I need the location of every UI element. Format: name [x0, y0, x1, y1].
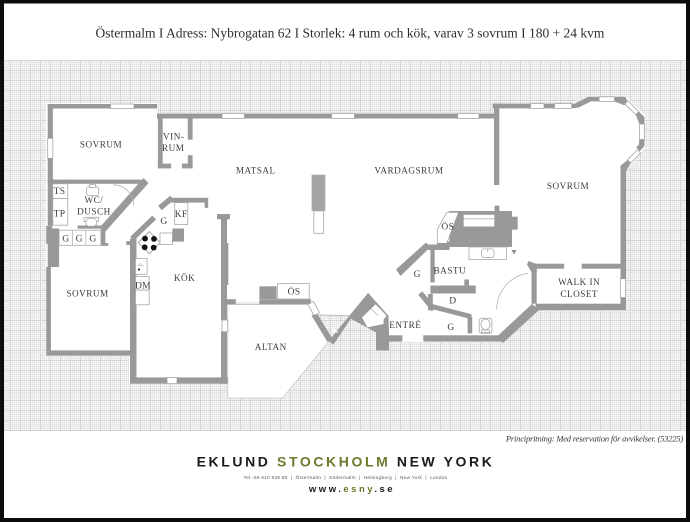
svg-text:EKLUND STOCKHOLM NEW YORK: EKLUND STOCKHOLM NEW YORK	[197, 454, 495, 470]
svg-text:ENTRÉ: ENTRÉ	[389, 320, 421, 330]
svg-text:SOVRUM: SOVRUM	[80, 140, 122, 150]
svg-text:RUM: RUM	[162, 143, 184, 153]
svg-text:Principritning: Med reservatio: Principritning: Med reservation för avvi…	[505, 434, 683, 444]
svg-text:CLOSET: CLOSET	[560, 289, 598, 299]
svg-text:TS: TS	[54, 187, 66, 197]
svg-text:TP: TP	[54, 210, 66, 220]
svg-text:DM: DM	[135, 282, 151, 292]
svg-text:G: G	[89, 234, 96, 244]
svg-text:ALTAN: ALTAN	[255, 342, 287, 352]
svg-text:G: G	[447, 323, 454, 333]
svg-text:WC/: WC/	[84, 195, 103, 205]
svg-text:www.esny.se: www.esny.se	[308, 484, 395, 495]
svg-text:DUSCH: DUSCH	[77, 206, 111, 216]
svg-text:SOVRUM: SOVRUM	[66, 289, 108, 299]
svg-text:ÖS: ÖS	[288, 286, 301, 298]
svg-text:G: G	[62, 234, 69, 244]
svg-text:Östermalm I Adress: Nybrogatan: Östermalm I Adress: Nybrogatan 62 I Stor…	[96, 26, 605, 41]
svg-text:G: G	[414, 270, 421, 280]
svg-text:ÖS: ÖS	[441, 221, 454, 233]
svg-text:G: G	[160, 217, 167, 227]
svg-text:VIN-: VIN-	[163, 132, 184, 142]
svg-text:Tel. 08-410 939 80 | Österma: Tel. 08-410 939 80 | Östermalm | Söderma…	[243, 474, 447, 480]
svg-text:G: G	[76, 234, 83, 244]
svg-text:KÖK: KÖK	[174, 273, 195, 283]
svg-text:BASTU: BASTU	[433, 266, 466, 276]
svg-text:SOVRUM: SOVRUM	[547, 181, 589, 191]
svg-text:VARDAGSRUM: VARDAGSRUM	[374, 166, 443, 176]
svg-text:MATSAL: MATSAL	[236, 166, 276, 176]
svg-text:D: D	[449, 297, 456, 307]
svg-text:WALK IN: WALK IN	[558, 277, 600, 287]
svg-text:KF: KF	[175, 210, 188, 220]
